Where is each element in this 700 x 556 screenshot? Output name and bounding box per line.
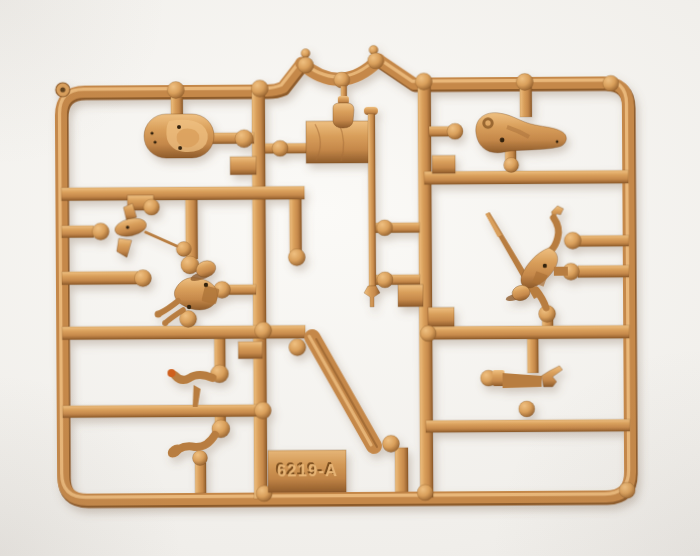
canteen-part <box>333 86 354 128</box>
lancer-figure-part <box>485 206 568 308</box>
rifle-rod <box>146 232 177 246</box>
pointing-hand <box>541 366 562 387</box>
rod-soldier <box>228 285 256 295</box>
rail-left-2 <box>62 226 94 238</box>
pole-pommel <box>364 286 380 307</box>
oval-base-part <box>144 114 214 158</box>
tab <box>432 155 455 173</box>
rail-left-5 <box>63 405 267 418</box>
tab <box>230 157 256 175</box>
sprue: 6219-A 6219-A <box>56 44 636 503</box>
mold-code-tab: 6219-A 6219-A <box>268 450 346 492</box>
terrain-base-part <box>476 112 567 153</box>
tab <box>398 285 423 307</box>
rail-right-3 <box>578 265 629 277</box>
rail-left-3 <box>62 271 138 284</box>
rail-left-1 <box>61 186 304 200</box>
rail-right-2 <box>577 235 629 246</box>
rail-right-4 <box>425 325 629 339</box>
bent-arm-part <box>167 369 212 407</box>
sprue-photo: 6219-A 6219-A <box>0 0 700 556</box>
stub-strip-bottom <box>395 448 408 492</box>
photo-background: 6219-A 6219-A <box>0 0 700 556</box>
rail-right-5 <box>426 419 630 432</box>
mold-code: 6219-A <box>277 461 338 479</box>
arch-nub <box>301 49 310 58</box>
tab <box>238 342 262 359</box>
flag-part <box>306 107 380 307</box>
stub-pointing-arm <box>527 339 538 373</box>
tab <box>428 307 454 326</box>
corner-ring <box>56 83 70 97</box>
painted-hand-tip <box>167 369 175 377</box>
strap-part <box>309 336 377 447</box>
gate-teardrop <box>193 385 201 407</box>
stub-arm2-lower <box>195 463 206 493</box>
stub-center-left <box>289 196 301 252</box>
